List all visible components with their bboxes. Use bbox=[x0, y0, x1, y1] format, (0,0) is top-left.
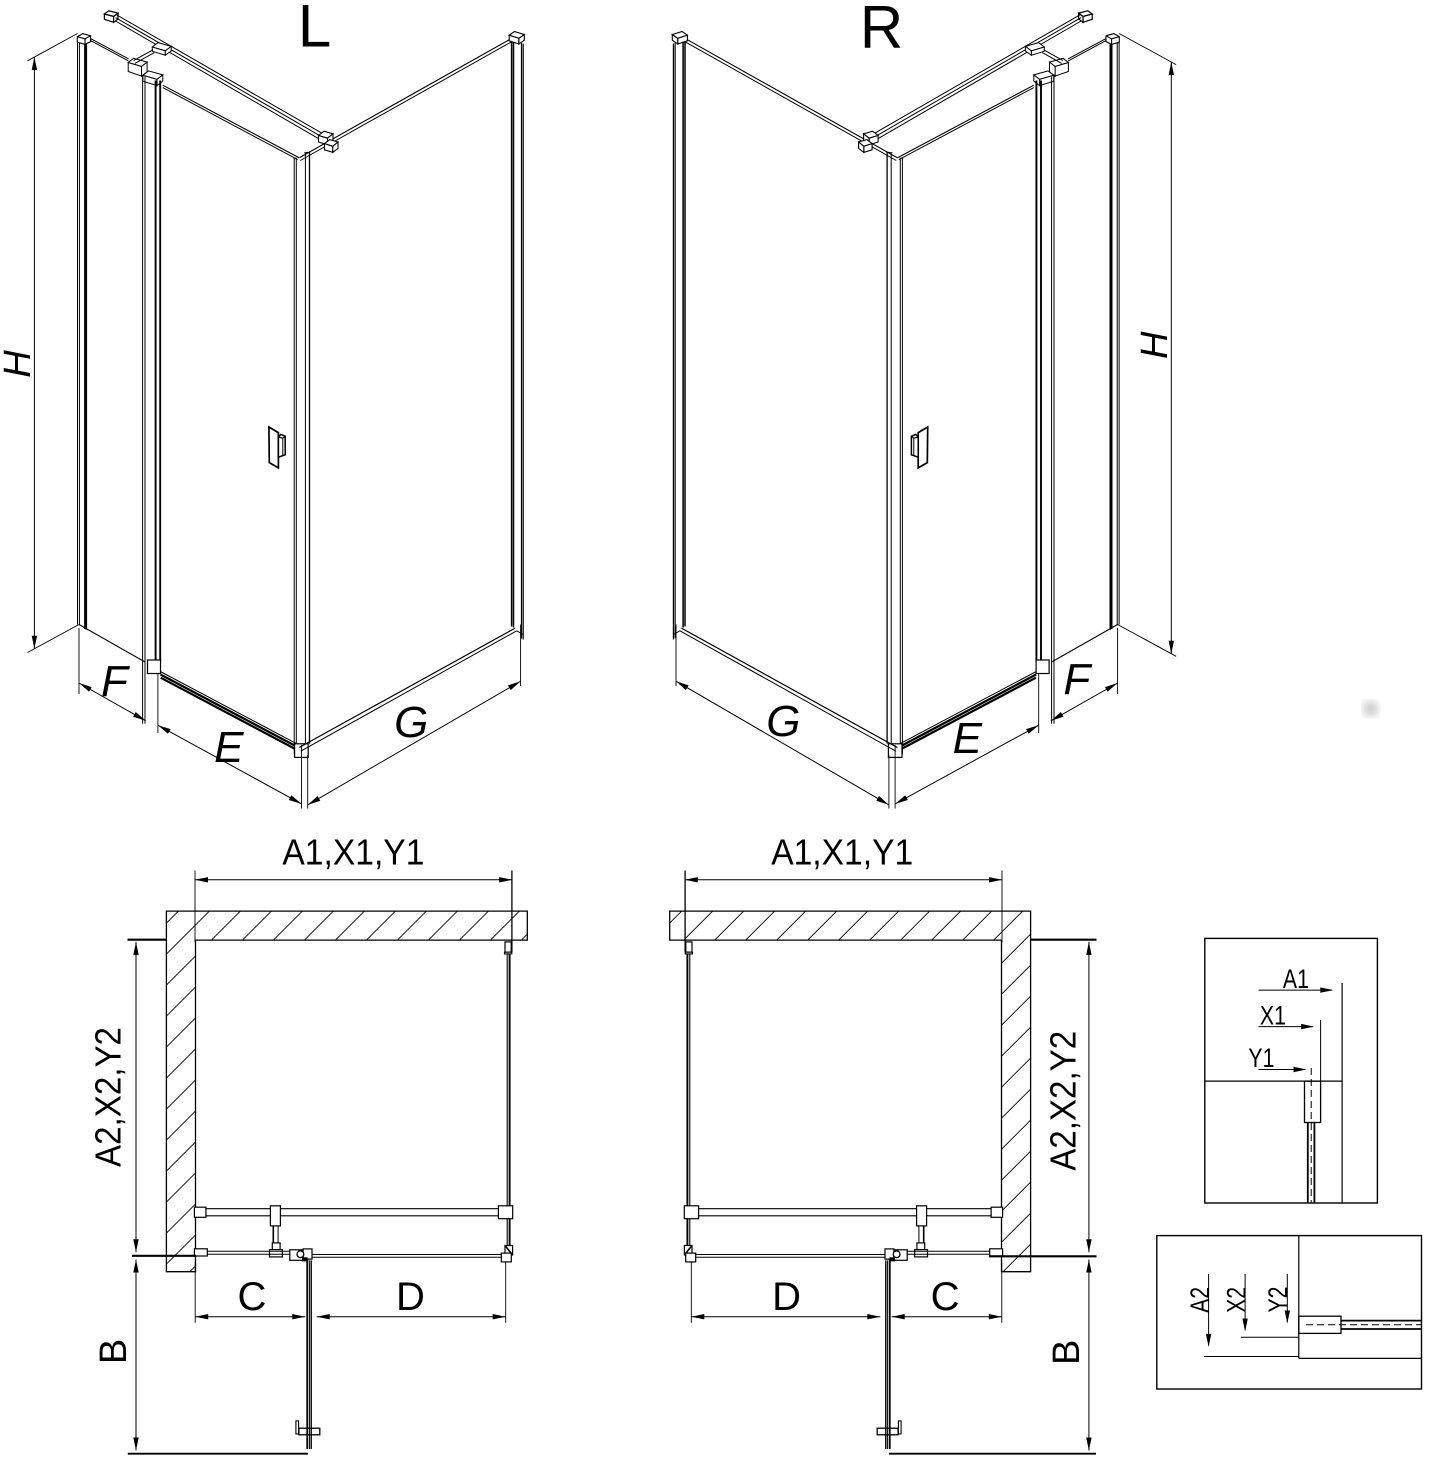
svg-text:B: B bbox=[93, 1339, 135, 1364]
svg-text:G: G bbox=[766, 697, 800, 746]
svg-text:F: F bbox=[1063, 655, 1092, 704]
svg-text:C: C bbox=[931, 1275, 960, 1319]
svg-text:D: D bbox=[396, 1275, 425, 1319]
svg-text:A1,X1,Y1: A1,X1,Y1 bbox=[771, 832, 913, 873]
svg-text:L: L bbox=[298, 0, 331, 60]
svg-text:E: E bbox=[214, 723, 244, 772]
svg-text:H: H bbox=[1134, 331, 1176, 359]
svg-text:Y2: Y2 bbox=[1263, 1287, 1293, 1313]
svg-text:G: G bbox=[394, 698, 428, 747]
svg-text:A1: A1 bbox=[1283, 964, 1309, 994]
svg-text:A2: A2 bbox=[1185, 1287, 1215, 1313]
svg-text:F: F bbox=[101, 657, 130, 706]
svg-text:B: B bbox=[1046, 1340, 1088, 1365]
svg-text:E: E bbox=[953, 714, 983, 763]
svg-text:H: H bbox=[0, 350, 39, 378]
svg-text:Y1: Y1 bbox=[1248, 1043, 1274, 1073]
svg-text:A2,X2,Y2: A2,X2,Y2 bbox=[1043, 1031, 1084, 1171]
svg-text:A1,X1,Y1: A1,X1,Y1 bbox=[282, 832, 424, 873]
svg-text:D: D bbox=[772, 1275, 801, 1319]
svg-text:A2,X2,Y2: A2,X2,Y2 bbox=[88, 1027, 129, 1167]
svg-text:C: C bbox=[237, 1275, 266, 1319]
svg-text:X2: X2 bbox=[1222, 1287, 1252, 1313]
svg-text:R: R bbox=[860, 0, 903, 61]
svg-text:X1: X1 bbox=[1260, 1001, 1286, 1031]
